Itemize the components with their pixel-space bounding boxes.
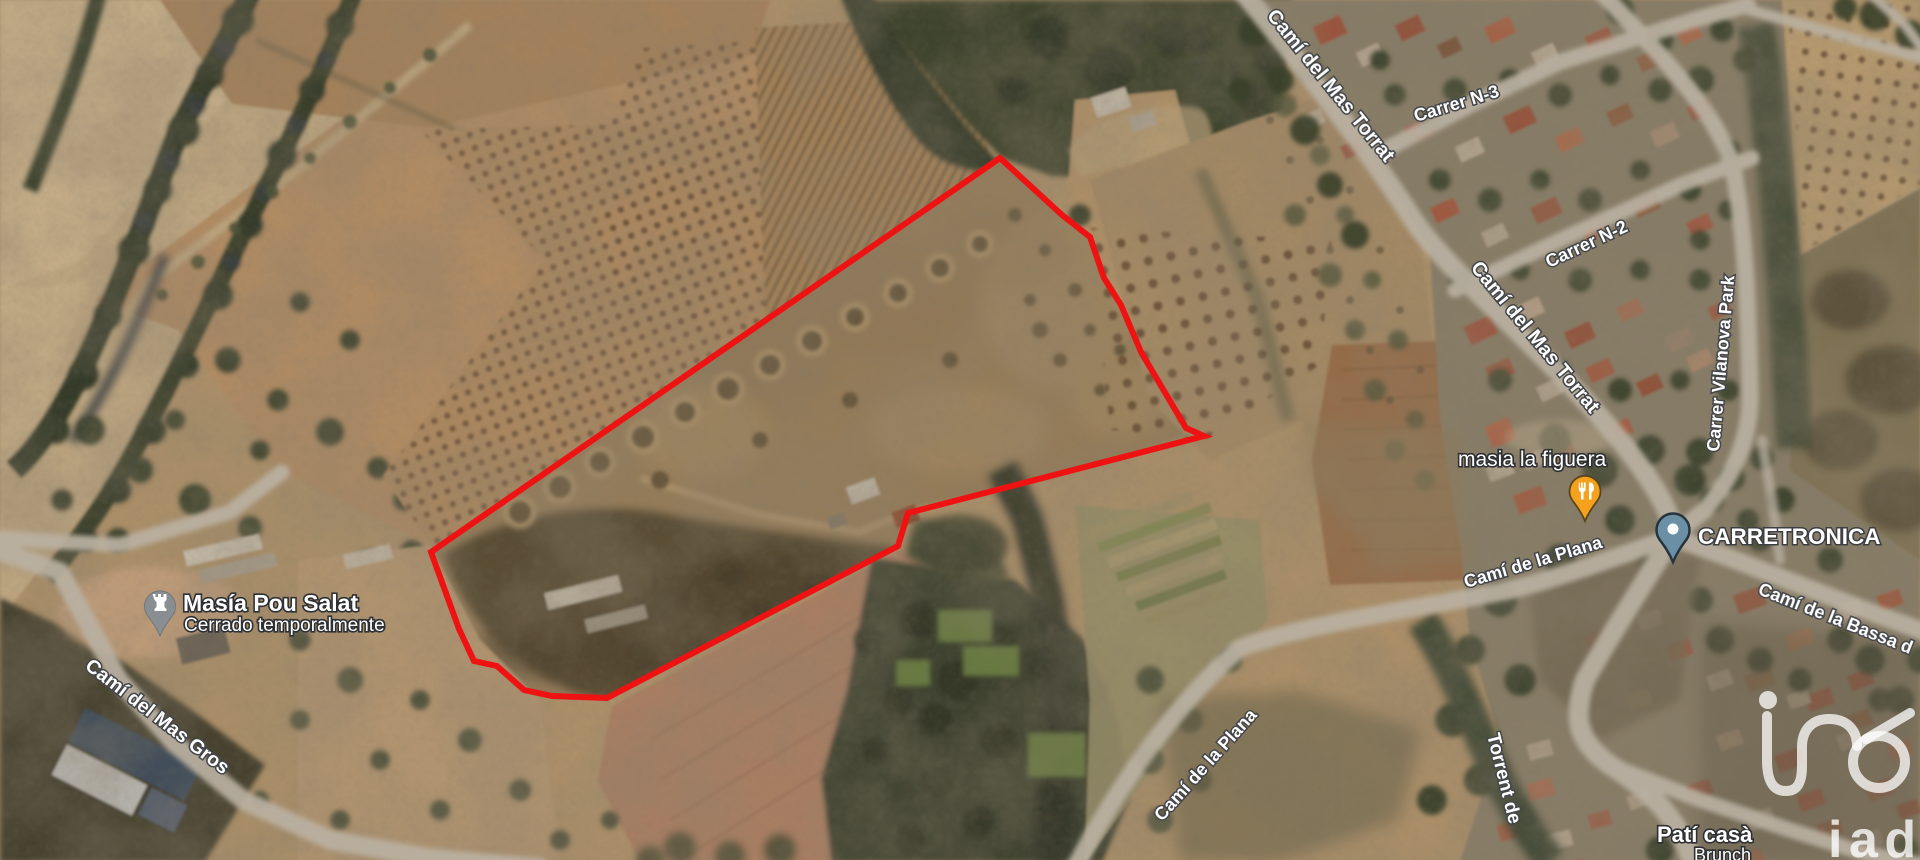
- svg-text:Masía Pou Salat: Masía Pou Salat: [183, 590, 358, 616]
- svg-text:CARRETRONICA: CARRETRONICA: [1698, 524, 1881, 549]
- svg-text:Patí casà: Patí casà: [1657, 822, 1753, 847]
- svg-text:Cerrado temporalmente: Cerrado temporalmente: [184, 615, 385, 636]
- svg-text:masia la figuera: masia la figuera: [1458, 448, 1607, 471]
- svg-text:iad: iad: [1828, 811, 1920, 860]
- svg-text:Brunch: Brunch: [1694, 845, 1751, 860]
